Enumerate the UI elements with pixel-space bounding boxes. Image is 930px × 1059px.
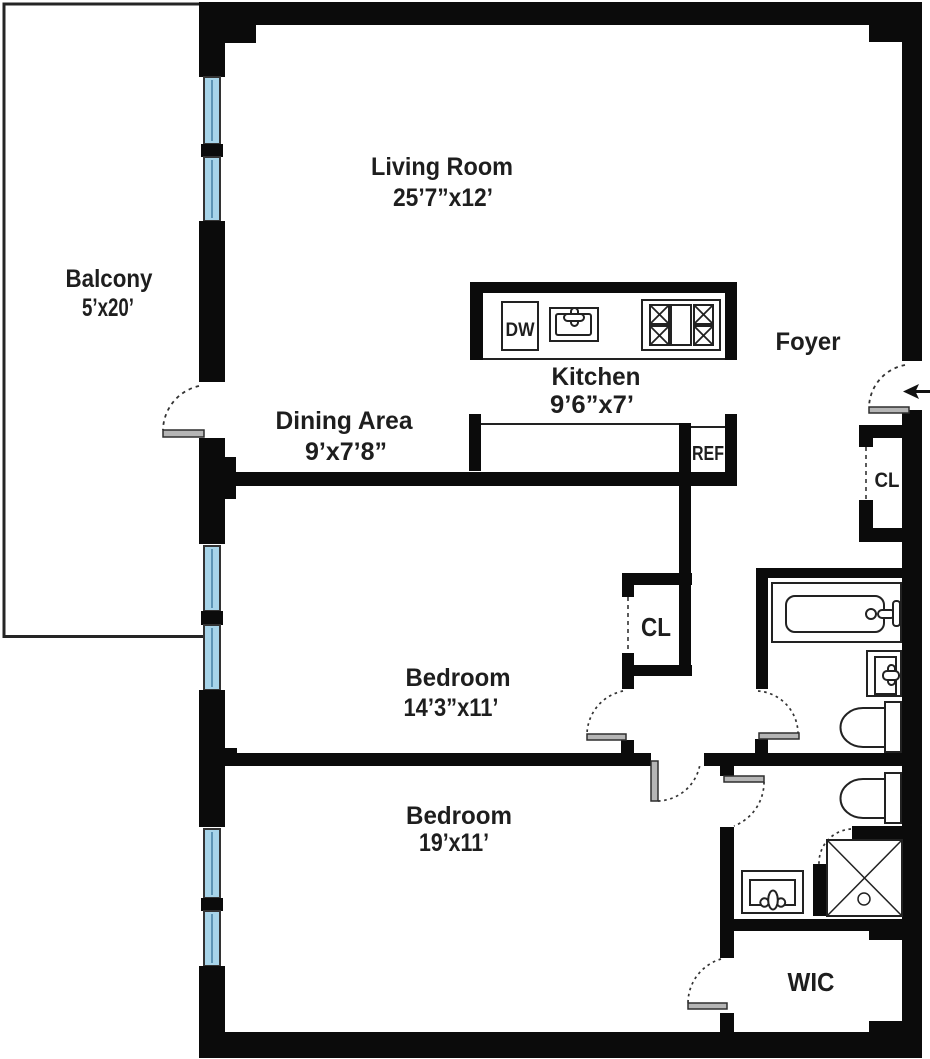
- svg-text:5’x20’: 5’x20’: [82, 294, 134, 322]
- svg-text:Bedroom: Bedroom: [406, 664, 511, 692]
- svg-text:CL: CL: [875, 469, 900, 492]
- svg-text:CL: CL: [641, 612, 671, 642]
- svg-text:WIC: WIC: [788, 967, 835, 997]
- svg-text:9’6”x7’: 9’6”x7’: [550, 391, 634, 419]
- svg-text:25’7”x12’: 25’7”x12’: [393, 184, 493, 212]
- svg-text:DW: DW: [506, 320, 535, 341]
- svg-text:Bedroom: Bedroom: [406, 802, 512, 830]
- svg-text:Living Room: Living Room: [371, 153, 513, 181]
- svg-text:9’x7’8”: 9’x7’8”: [305, 438, 387, 466]
- svg-text:Balcony: Balcony: [66, 265, 153, 293]
- svg-text:14’3”x11’: 14’3”x11’: [404, 694, 499, 722]
- svg-text:Foyer: Foyer: [776, 328, 841, 356]
- svg-text:Dining Area: Dining Area: [276, 407, 414, 435]
- svg-text:19’x11’: 19’x11’: [419, 829, 489, 857]
- svg-text:Kitchen: Kitchen: [552, 363, 641, 391]
- svg-text:REF: REF: [692, 443, 724, 465]
